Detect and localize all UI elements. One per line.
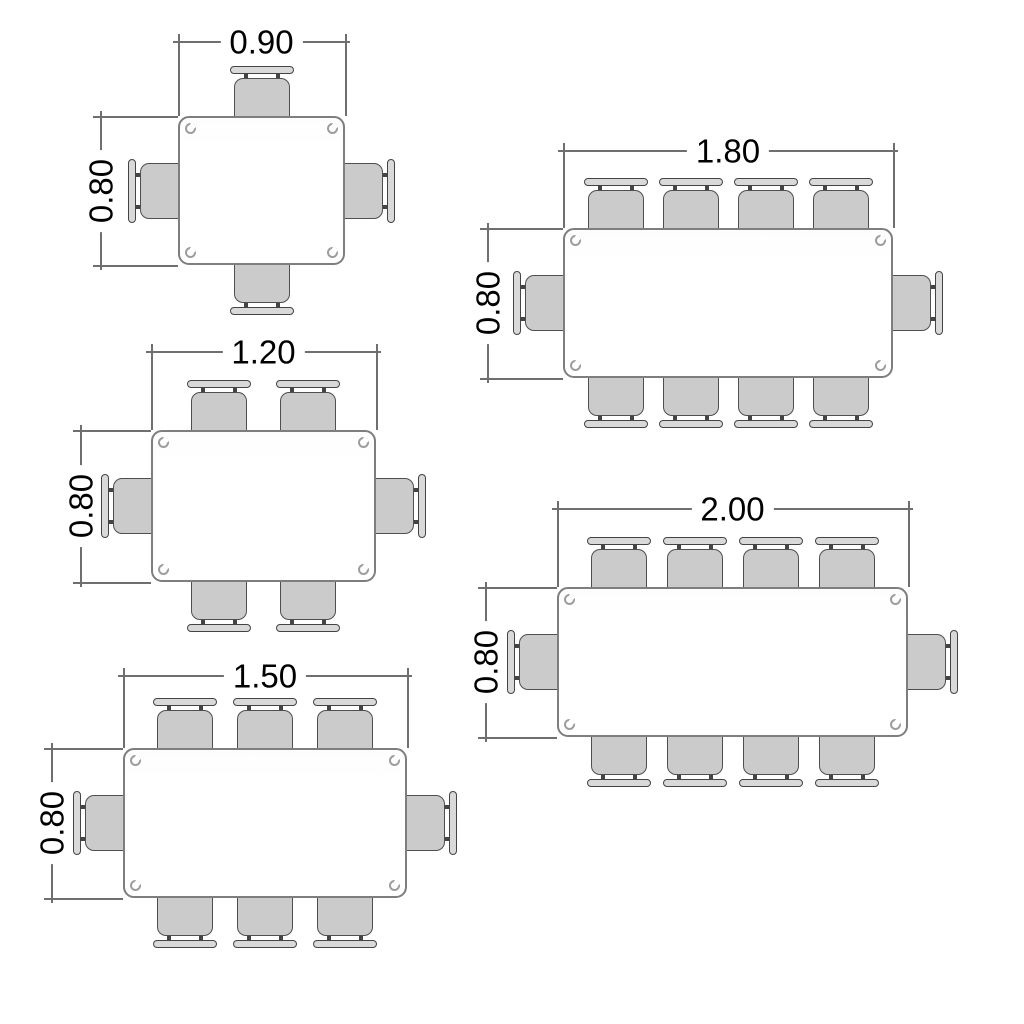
extension-line-top [478, 587, 557, 589]
extension-line-bottom [44, 898, 123, 900]
corner-screw [564, 594, 575, 605]
chair-backrest [128, 159, 136, 223]
table-top [557, 587, 908, 737]
chair-backrest [950, 630, 958, 694]
extension-line-top [480, 228, 563, 230]
extension-line-right [345, 34, 347, 116]
corner-screw [875, 360, 886, 371]
chair-backrest [739, 537, 803, 545]
chair-backrest [153, 940, 217, 948]
corner-screw [130, 880, 141, 891]
extension-line-left [563, 143, 565, 228]
table-top [563, 228, 893, 378]
extension-line-bottom [93, 265, 178, 267]
corner-screw [185, 247, 196, 258]
depth-dimension-label: 0.80 [34, 782, 71, 864]
extension-line-bottom [478, 737, 557, 739]
chair-backrest [449, 791, 457, 855]
chair-backrest [387, 159, 395, 223]
corner-screw [158, 564, 169, 575]
extension-line-top [44, 748, 123, 750]
corner-screw [570, 360, 581, 371]
extension-line-left [178, 34, 180, 116]
chair-backrest [659, 178, 723, 186]
depth-dimension-label: 0.80 [468, 621, 505, 703]
chair-backrest [187, 380, 251, 388]
chair-backrest [507, 630, 515, 694]
width-dimension-label: 1.50 [224, 658, 306, 695]
chair-backrest [276, 380, 340, 388]
chair-backrest [276, 624, 340, 632]
extension-line-left [123, 668, 125, 748]
corner-screw [890, 594, 901, 605]
extension-line-right [908, 501, 910, 587]
chair-backrest [809, 178, 873, 186]
chair-backrest [233, 940, 297, 948]
depth-dimension-label: 0.80 [63, 465, 100, 547]
chair-backrest [153, 698, 217, 706]
corner-screw [158, 437, 169, 448]
chair-backrest [659, 420, 723, 428]
extension-line-top [93, 116, 178, 118]
corner-screw [327, 123, 338, 134]
chair-backrest [418, 474, 426, 538]
width-dimension-label: 2.00 [691, 491, 773, 528]
corner-screw [185, 123, 196, 134]
chair-backrest [313, 940, 377, 948]
chair-backrest [73, 791, 81, 855]
corner-screw [327, 247, 338, 258]
corner-screw [570, 235, 581, 246]
chair-backrest [734, 420, 798, 428]
corner-screw [564, 719, 575, 730]
corner-screw [875, 235, 886, 246]
corner-screw [358, 437, 369, 448]
extension-line-right [407, 668, 409, 748]
chair-backrest [230, 307, 294, 315]
chair-backrest [584, 178, 648, 186]
chair-backrest [587, 537, 651, 545]
chair-backrest [815, 537, 879, 545]
table-top [123, 748, 407, 898]
corner-screw [130, 755, 141, 766]
chair-backrest [313, 698, 377, 706]
extension-line-left [151, 344, 153, 430]
chair-backrest [734, 178, 798, 186]
depth-dimension-label: 0.80 [470, 262, 507, 344]
width-dimension-label: 1.20 [222, 334, 304, 371]
corner-screw [358, 564, 369, 575]
width-dimension-label: 1.80 [687, 133, 769, 170]
extension-line-top [73, 430, 151, 432]
chair-backrest [584, 420, 648, 428]
chair-backrest [187, 624, 251, 632]
chair-backrest [230, 66, 294, 74]
corner-screw [389, 880, 400, 891]
corner-screw [389, 755, 400, 766]
chair-backrest [513, 271, 521, 335]
table-top [151, 430, 376, 582]
chair-backrest [935, 271, 943, 335]
depth-dimension-label: 0.80 [83, 149, 120, 231]
chair-backrest [815, 779, 879, 787]
chair-backrest [101, 474, 109, 538]
extension-line-left [557, 501, 559, 587]
extension-line-bottom [73, 582, 151, 584]
chair-backrest [663, 779, 727, 787]
chair-backrest [739, 779, 803, 787]
chair-backrest [809, 420, 873, 428]
chair-backrest [233, 698, 297, 706]
extension-line-right [376, 344, 378, 430]
corner-screw [890, 719, 901, 730]
table-seating-plan-diagram: 0.900.801.200.801.500.801.800.802.000.80 [0, 0, 1024, 1024]
table-top [178, 116, 345, 265]
chair-backrest [587, 779, 651, 787]
width-dimension-label: 0.90 [220, 24, 302, 61]
extension-line-bottom [480, 378, 563, 380]
extension-line-right [893, 143, 895, 228]
chair-backrest [663, 537, 727, 545]
